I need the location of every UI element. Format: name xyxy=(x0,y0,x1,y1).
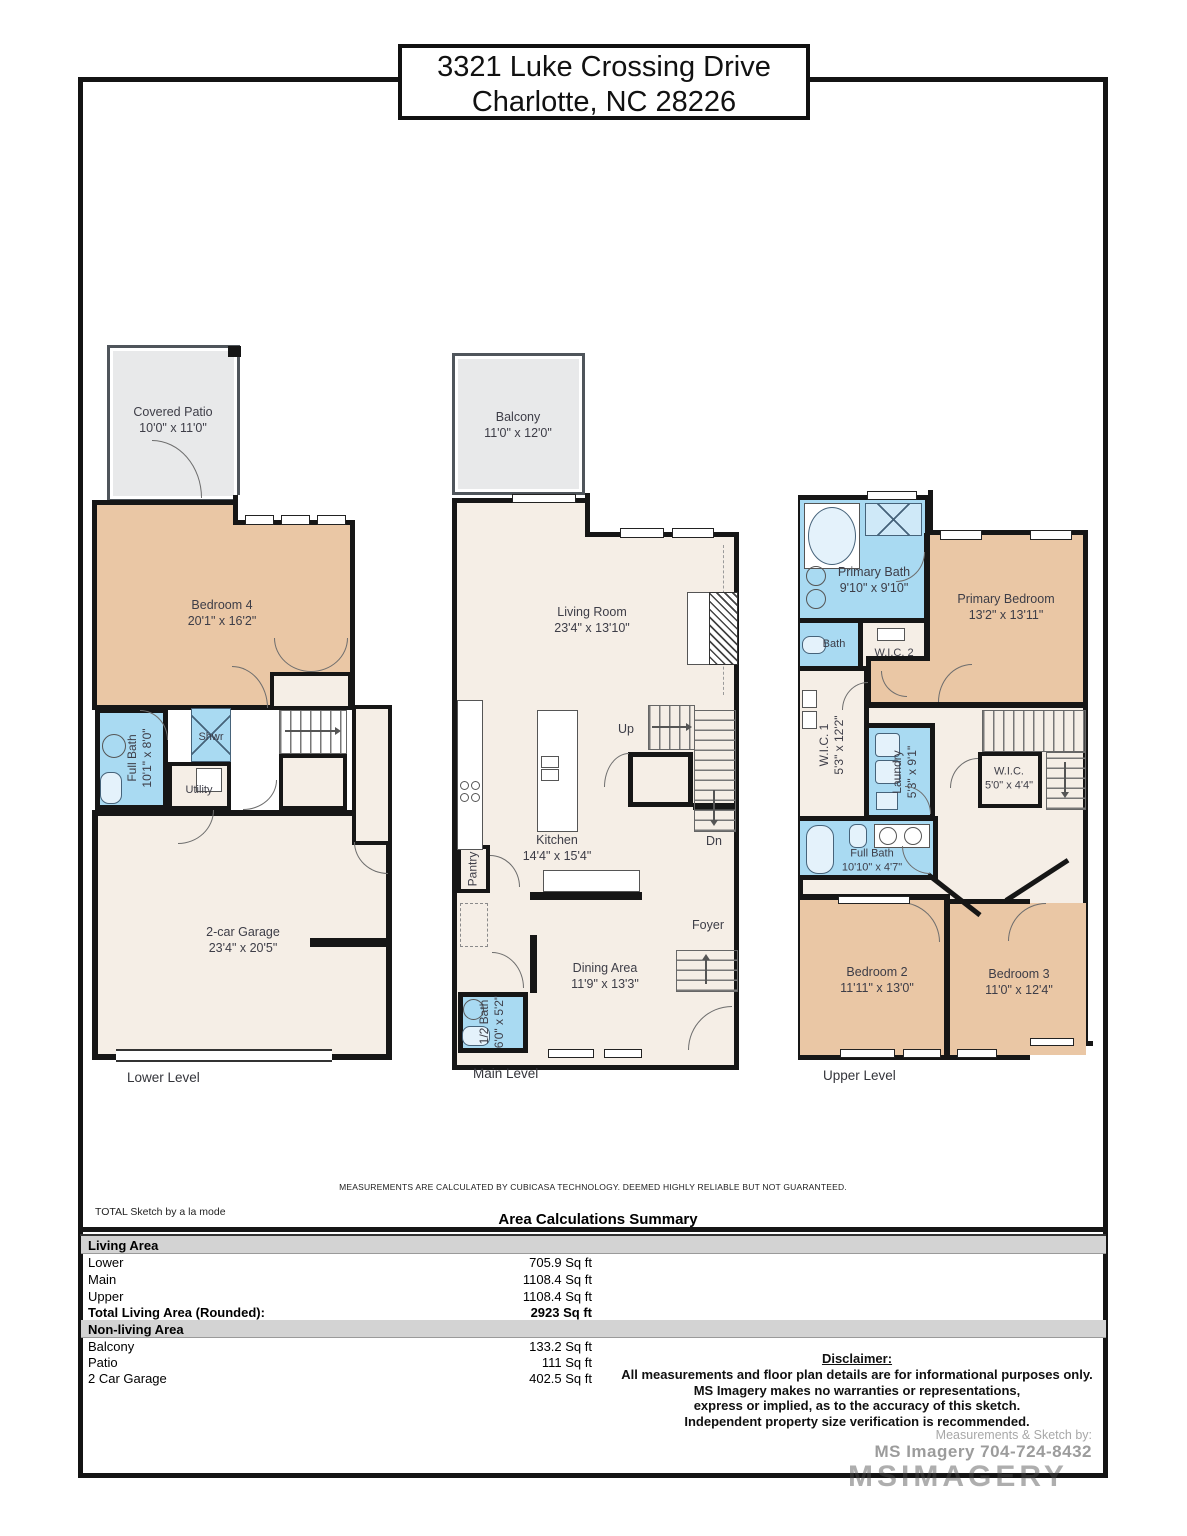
measurement-note: MEASUREMENTS ARE CALCULATED BY CUBICASA … xyxy=(293,1182,893,1192)
stairs-down xyxy=(694,710,736,832)
bedroom4-label: Bedroom 420'1" x 16'2" xyxy=(188,597,257,630)
address-title: 3321 Luke Crossing Drive Charlotte, NC 2… xyxy=(398,44,810,120)
nonliving-area-header: Non-living Area xyxy=(88,1322,184,1337)
row-upper-value: 1108.4 Sq ft xyxy=(380,1289,592,1304)
dn-label: Dn xyxy=(706,833,722,849)
wic2-label: W.I.C. 2 xyxy=(874,646,913,660)
up-label: Up xyxy=(618,721,634,737)
row-lower-value: 705.9 Sq ft xyxy=(380,1255,592,1270)
living-area-header: Living Area xyxy=(88,1238,158,1253)
primary-bedroom-label: Primary Bedroom13'2" x 13'11" xyxy=(957,591,1054,624)
garage-overhead-door xyxy=(116,1049,332,1062)
row-balcony-label: Balcony xyxy=(88,1339,134,1354)
row-main-label: Main xyxy=(88,1272,116,1287)
balcony-label: Balcony11'0" x 12'0" xyxy=(484,409,552,442)
bedroom2-label: Bedroom 211'11" x 13'0" xyxy=(840,964,914,997)
kitchen-wall-stub xyxy=(530,892,642,900)
row-garage-label: 2 Car Garage xyxy=(88,1371,167,1386)
row-garage-value: 402.5 Sq ft xyxy=(380,1371,592,1386)
row-total-label: Total Living Area (Rounded): xyxy=(88,1305,265,1320)
understairs-closet xyxy=(279,754,347,810)
area-summary-title: Area Calculations Summary xyxy=(398,1211,798,1228)
credit-line1: Measurements & Sketch by: xyxy=(692,1428,1092,1442)
row-patio-label: Patio xyxy=(88,1355,118,1370)
kitchen-table xyxy=(543,870,640,892)
upper-floor-step xyxy=(928,490,1088,535)
living-room-label: Living Room23'4" x 13'10" xyxy=(554,604,630,637)
lower-full-bath-label: Full Bath10'1" x 8'0" xyxy=(125,728,155,787)
credit-line2: MS Imagery 704-724-8432 xyxy=(692,1442,1092,1462)
upper-bath-label: Bath xyxy=(823,637,846,651)
island-sink xyxy=(541,756,559,768)
table-rule xyxy=(80,1227,1106,1232)
address-line1: 3321 Luke Crossing Drive xyxy=(402,50,806,85)
garage-landing xyxy=(352,705,392,845)
covered-patio-label: Covered Patio10'0" x 11'0" xyxy=(133,404,212,437)
row-balcony-value: 133.2 Sq ft xyxy=(380,1339,592,1354)
primary-bath-label: Primary Bath9'10" x 9'10" xyxy=(838,564,910,597)
pantry-label: Pantry xyxy=(466,852,481,887)
shower-label: Shwr xyxy=(198,730,223,744)
upper-stairs-run xyxy=(982,710,1086,752)
nonliving-area-band xyxy=(81,1320,1106,1338)
patio-corner-post xyxy=(228,346,241,357)
half-bath-label: 1/2 Bath6'0" x 5'2" xyxy=(477,996,507,1048)
upper-level-label: Upper Level xyxy=(823,1068,896,1083)
row-main-value: 1108.4 Sq ft xyxy=(380,1272,592,1287)
kitchen-counter xyxy=(457,700,483,850)
disclaimer-title: Disclaimer: xyxy=(607,1351,1107,1366)
laundry-label: Laundry5'3" x 9'1" xyxy=(890,746,920,798)
primary-shower xyxy=(865,503,922,536)
foyer-label: Foyer xyxy=(692,917,724,933)
bedroom3-label: Bedroom 311'0" x 12'4" xyxy=(985,966,1053,999)
ms-imagery-watermark: MSIMAGERY xyxy=(848,1460,1068,1494)
disclaimer-text: All measurements and floor plan details … xyxy=(597,1367,1117,1429)
living-area-band xyxy=(81,1236,1106,1254)
row-lower-label: Lower xyxy=(88,1255,123,1270)
row-patio-value: 111 Sq ft xyxy=(380,1355,592,1370)
garage-wall-stub xyxy=(310,938,392,947)
utility-label: Utility xyxy=(186,783,213,797)
lower-closet xyxy=(270,672,352,710)
main-level-label: Main Level xyxy=(473,1066,538,1081)
row-upper-label: Upper xyxy=(88,1289,123,1304)
upper-full-bath-label: Full Bath10'10" x 4'7" xyxy=(842,847,902,876)
fireplace-hatch xyxy=(709,592,738,665)
wic1-label: W.I.C. 15'3" x 12'2" xyxy=(817,715,847,774)
total-sketch-logo: TOTAL Sketch by a la mode xyxy=(95,1206,226,1218)
coat-closet xyxy=(460,903,488,947)
row-total-value: 2923 Sq ft xyxy=(380,1305,592,1320)
garage-label: 2-car Garage23'4" x 20'5" xyxy=(206,924,280,957)
upper-stairs-turn xyxy=(1046,752,1086,810)
stair-landing xyxy=(628,752,693,807)
address-line2: Charlotte, NC 28226 xyxy=(402,85,806,120)
dining-label: Dining Area11'9" x 13'3" xyxy=(571,960,639,993)
wic-label: W.I.C.5'0" x 4'4" xyxy=(985,765,1033,794)
dining-wall xyxy=(530,935,537,993)
kitchen-label: Kitchen14'4" x 15'4" xyxy=(523,832,592,865)
floor-plan-sheet: 3321 Luke Crossing Drive Charlotte, NC 2… xyxy=(0,0,1187,1536)
lower-level-label: Lower Level xyxy=(127,1070,200,1085)
